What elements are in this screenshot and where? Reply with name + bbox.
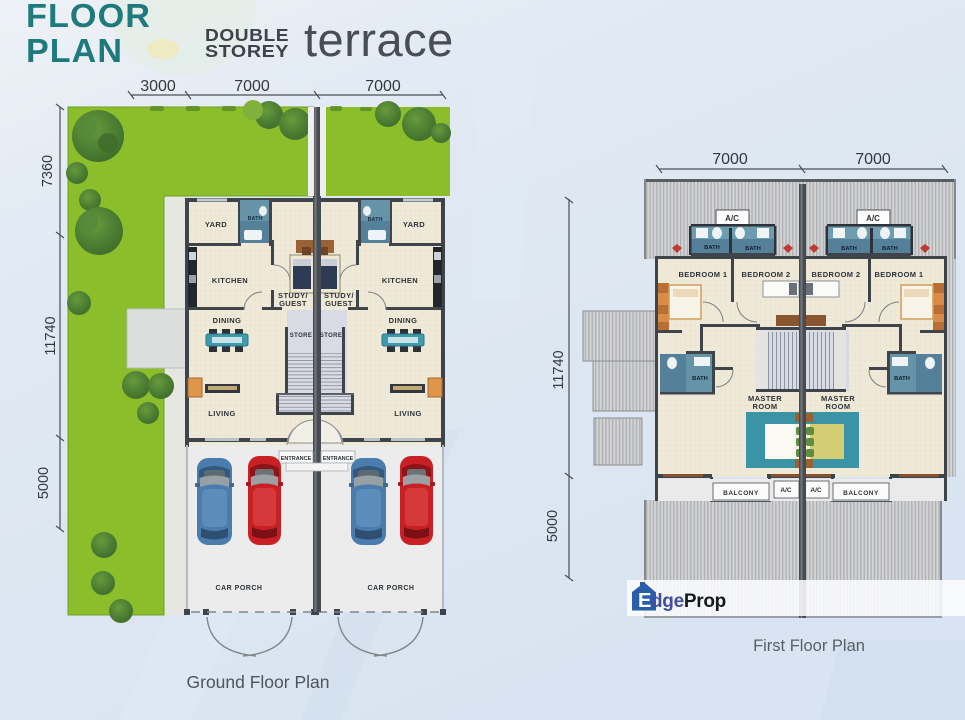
svg-text:Ground Floor Plan: Ground Floor Plan: [187, 672, 330, 692]
svg-text:BATH: BATH: [894, 376, 910, 382]
svg-text:BEDROOM 1: BEDROOM 1: [874, 270, 923, 279]
svg-text:BALCONY: BALCONY: [723, 490, 759, 497]
svg-text:LIVING: LIVING: [394, 409, 421, 418]
svg-text:BATH: BATH: [692, 376, 708, 382]
svg-text:BATH: BATH: [248, 216, 263, 222]
svg-text:KITCHEN: KITCHEN: [382, 276, 418, 285]
svg-text:STOREY: STOREY: [205, 41, 289, 61]
svg-text:ROOM: ROOM: [826, 402, 851, 411]
svg-text:STORE: STORE: [320, 333, 343, 339]
svg-text:terrace: terrace: [304, 13, 454, 66]
svg-text:A/C: A/C: [866, 214, 880, 223]
svg-text:PLAN: PLAN: [26, 32, 123, 69]
svg-text:DINING: DINING: [213, 316, 242, 325]
svg-text:A/C: A/C: [725, 214, 739, 223]
svg-text:A/C: A/C: [780, 487, 792, 494]
svg-text:11740: 11740: [551, 350, 567, 389]
svg-text:7360: 7360: [40, 155, 56, 187]
svg-text:LIVING: LIVING: [208, 409, 235, 418]
svg-text:BEDROOM 1: BEDROOM 1: [678, 270, 727, 279]
svg-text:BEDROOM 2: BEDROOM 2: [811, 270, 860, 279]
svg-text:BATH: BATH: [704, 245, 720, 251]
svg-text:BALCONY: BALCONY: [843, 490, 879, 497]
svg-text:ENTRANCE: ENTRANCE: [323, 456, 354, 462]
svg-text:GUEST: GUEST: [279, 299, 307, 308]
svg-text:DINING: DINING: [389, 316, 418, 325]
svg-text:ENTRANCE: ENTRANCE: [281, 456, 312, 462]
svg-text:FLOOR: FLOOR: [26, 0, 151, 34]
svg-text:5000: 5000: [545, 510, 561, 542]
svg-text:BATH: BATH: [745, 246, 761, 252]
svg-text:BATH: BATH: [368, 217, 383, 223]
svg-text:A/C: A/C: [810, 487, 822, 494]
svg-text:BEDROOM 2: BEDROOM 2: [741, 270, 790, 279]
svg-text:BATH: BATH: [882, 246, 898, 252]
svg-text:3000: 3000: [140, 78, 176, 95]
svg-text:7000: 7000: [365, 78, 401, 95]
svg-text:7000: 7000: [855, 151, 891, 168]
svg-text:KITCHEN: KITCHEN: [212, 276, 248, 285]
svg-text:7000: 7000: [712, 151, 748, 168]
svg-text:BATH: BATH: [841, 246, 857, 252]
svg-text:GUEST: GUEST: [325, 299, 353, 308]
svg-text:E: E: [638, 590, 651, 612]
svg-text:7000: 7000: [234, 78, 270, 95]
svg-text:5000: 5000: [36, 467, 52, 499]
svg-text:YARD: YARD: [403, 220, 425, 229]
svg-text:CAR PORCH: CAR PORCH: [368, 585, 415, 592]
svg-text:11740: 11740: [43, 316, 59, 355]
svg-text:ROOM: ROOM: [753, 402, 778, 411]
svg-text:dgeProp: dgeProp: [651, 591, 726, 612]
svg-text:First Floor Plan: First Floor Plan: [753, 637, 865, 655]
svg-text:CAR PORCH: CAR PORCH: [216, 585, 263, 592]
svg-text:YARD: YARD: [205, 220, 227, 229]
svg-text:STORE: STORE: [290, 333, 313, 339]
